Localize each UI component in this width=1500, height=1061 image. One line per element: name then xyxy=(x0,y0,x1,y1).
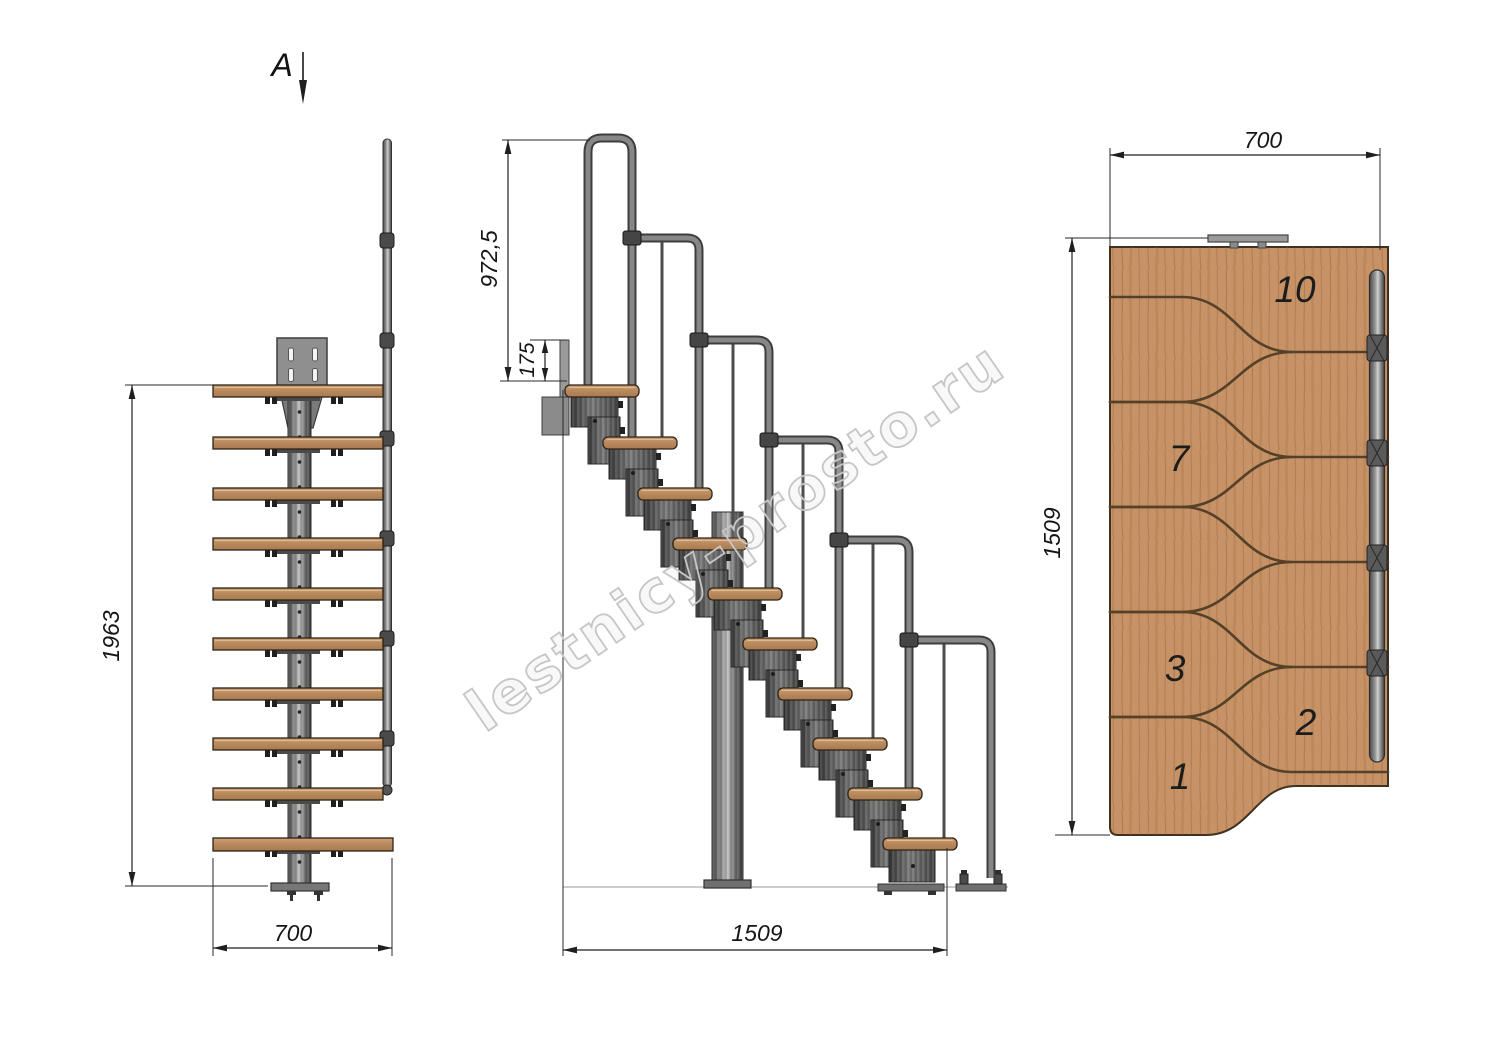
rail-clamp xyxy=(1367,650,1387,676)
tread xyxy=(708,588,782,600)
tread xyxy=(213,488,383,500)
step-number-1: 1 xyxy=(1170,756,1191,797)
tread xyxy=(213,688,383,700)
column-base-flange xyxy=(704,880,751,888)
tread xyxy=(565,385,639,397)
dim-label-side-rise: 175 xyxy=(516,342,539,377)
rail-clamp xyxy=(900,633,918,647)
front-view xyxy=(213,139,394,901)
dim-plan-width: 700 xyxy=(1110,127,1380,250)
step-number-7: 7 xyxy=(1169,438,1191,479)
tread xyxy=(638,488,712,500)
section-cut-marker: A xyxy=(269,47,307,104)
tread xyxy=(743,638,817,650)
rail-clamp xyxy=(623,231,641,245)
section-arrow-head xyxy=(299,80,307,104)
dim-side-rise: 175 xyxy=(516,340,567,381)
tread xyxy=(213,538,383,550)
tread xyxy=(213,437,383,449)
tread xyxy=(213,638,383,650)
rail-clamp xyxy=(1367,545,1387,571)
handrail-top xyxy=(1367,270,1387,762)
rail-clamp xyxy=(760,433,778,447)
plate-slot xyxy=(313,348,318,361)
staircase-drawing: A xyxy=(0,0,1500,1061)
rail-fitting xyxy=(380,233,394,248)
dim-label-side-length: 1509 xyxy=(731,920,782,946)
step-number-2: 2 xyxy=(1295,702,1317,743)
rail-clamp xyxy=(1367,440,1387,466)
tread xyxy=(213,738,383,750)
tread xyxy=(778,688,852,700)
plate-slot xyxy=(313,369,318,382)
tread xyxy=(213,788,383,800)
tread xyxy=(213,588,383,600)
section-label: A xyxy=(269,47,292,83)
tread xyxy=(603,437,677,449)
base-flange xyxy=(271,883,329,901)
dim-label-plan-width: 700 xyxy=(1244,127,1283,153)
tread xyxy=(213,385,383,397)
dim-label-side-height: 972,5 xyxy=(476,230,502,288)
step-number-3: 3 xyxy=(1165,648,1186,689)
rail-clamp xyxy=(830,533,848,547)
dim-label-front-width: 700 xyxy=(274,920,313,946)
plate-slot xyxy=(289,348,294,361)
dim-label-plan-depth: 1509 xyxy=(1039,507,1065,558)
mounting-plate xyxy=(277,338,327,387)
tread xyxy=(813,738,887,750)
step-number-10: 10 xyxy=(1274,269,1316,310)
tread xyxy=(213,838,393,851)
plate-slot xyxy=(289,369,294,382)
dim-label-front-height: 1963 xyxy=(98,610,124,661)
tread xyxy=(883,838,957,850)
plan-view: 10 7 3 2 1 xyxy=(1110,235,1388,835)
rail-foot-bracket xyxy=(956,870,1006,891)
tread xyxy=(848,788,922,800)
rail-clamp xyxy=(1367,335,1387,361)
rail-clamp xyxy=(690,333,708,347)
wall-bracket xyxy=(542,397,569,435)
rail-fitting xyxy=(380,333,394,348)
technical-drawing-canvas: A xyxy=(0,0,1500,1061)
dim-front-height: 1963 xyxy=(98,385,268,886)
